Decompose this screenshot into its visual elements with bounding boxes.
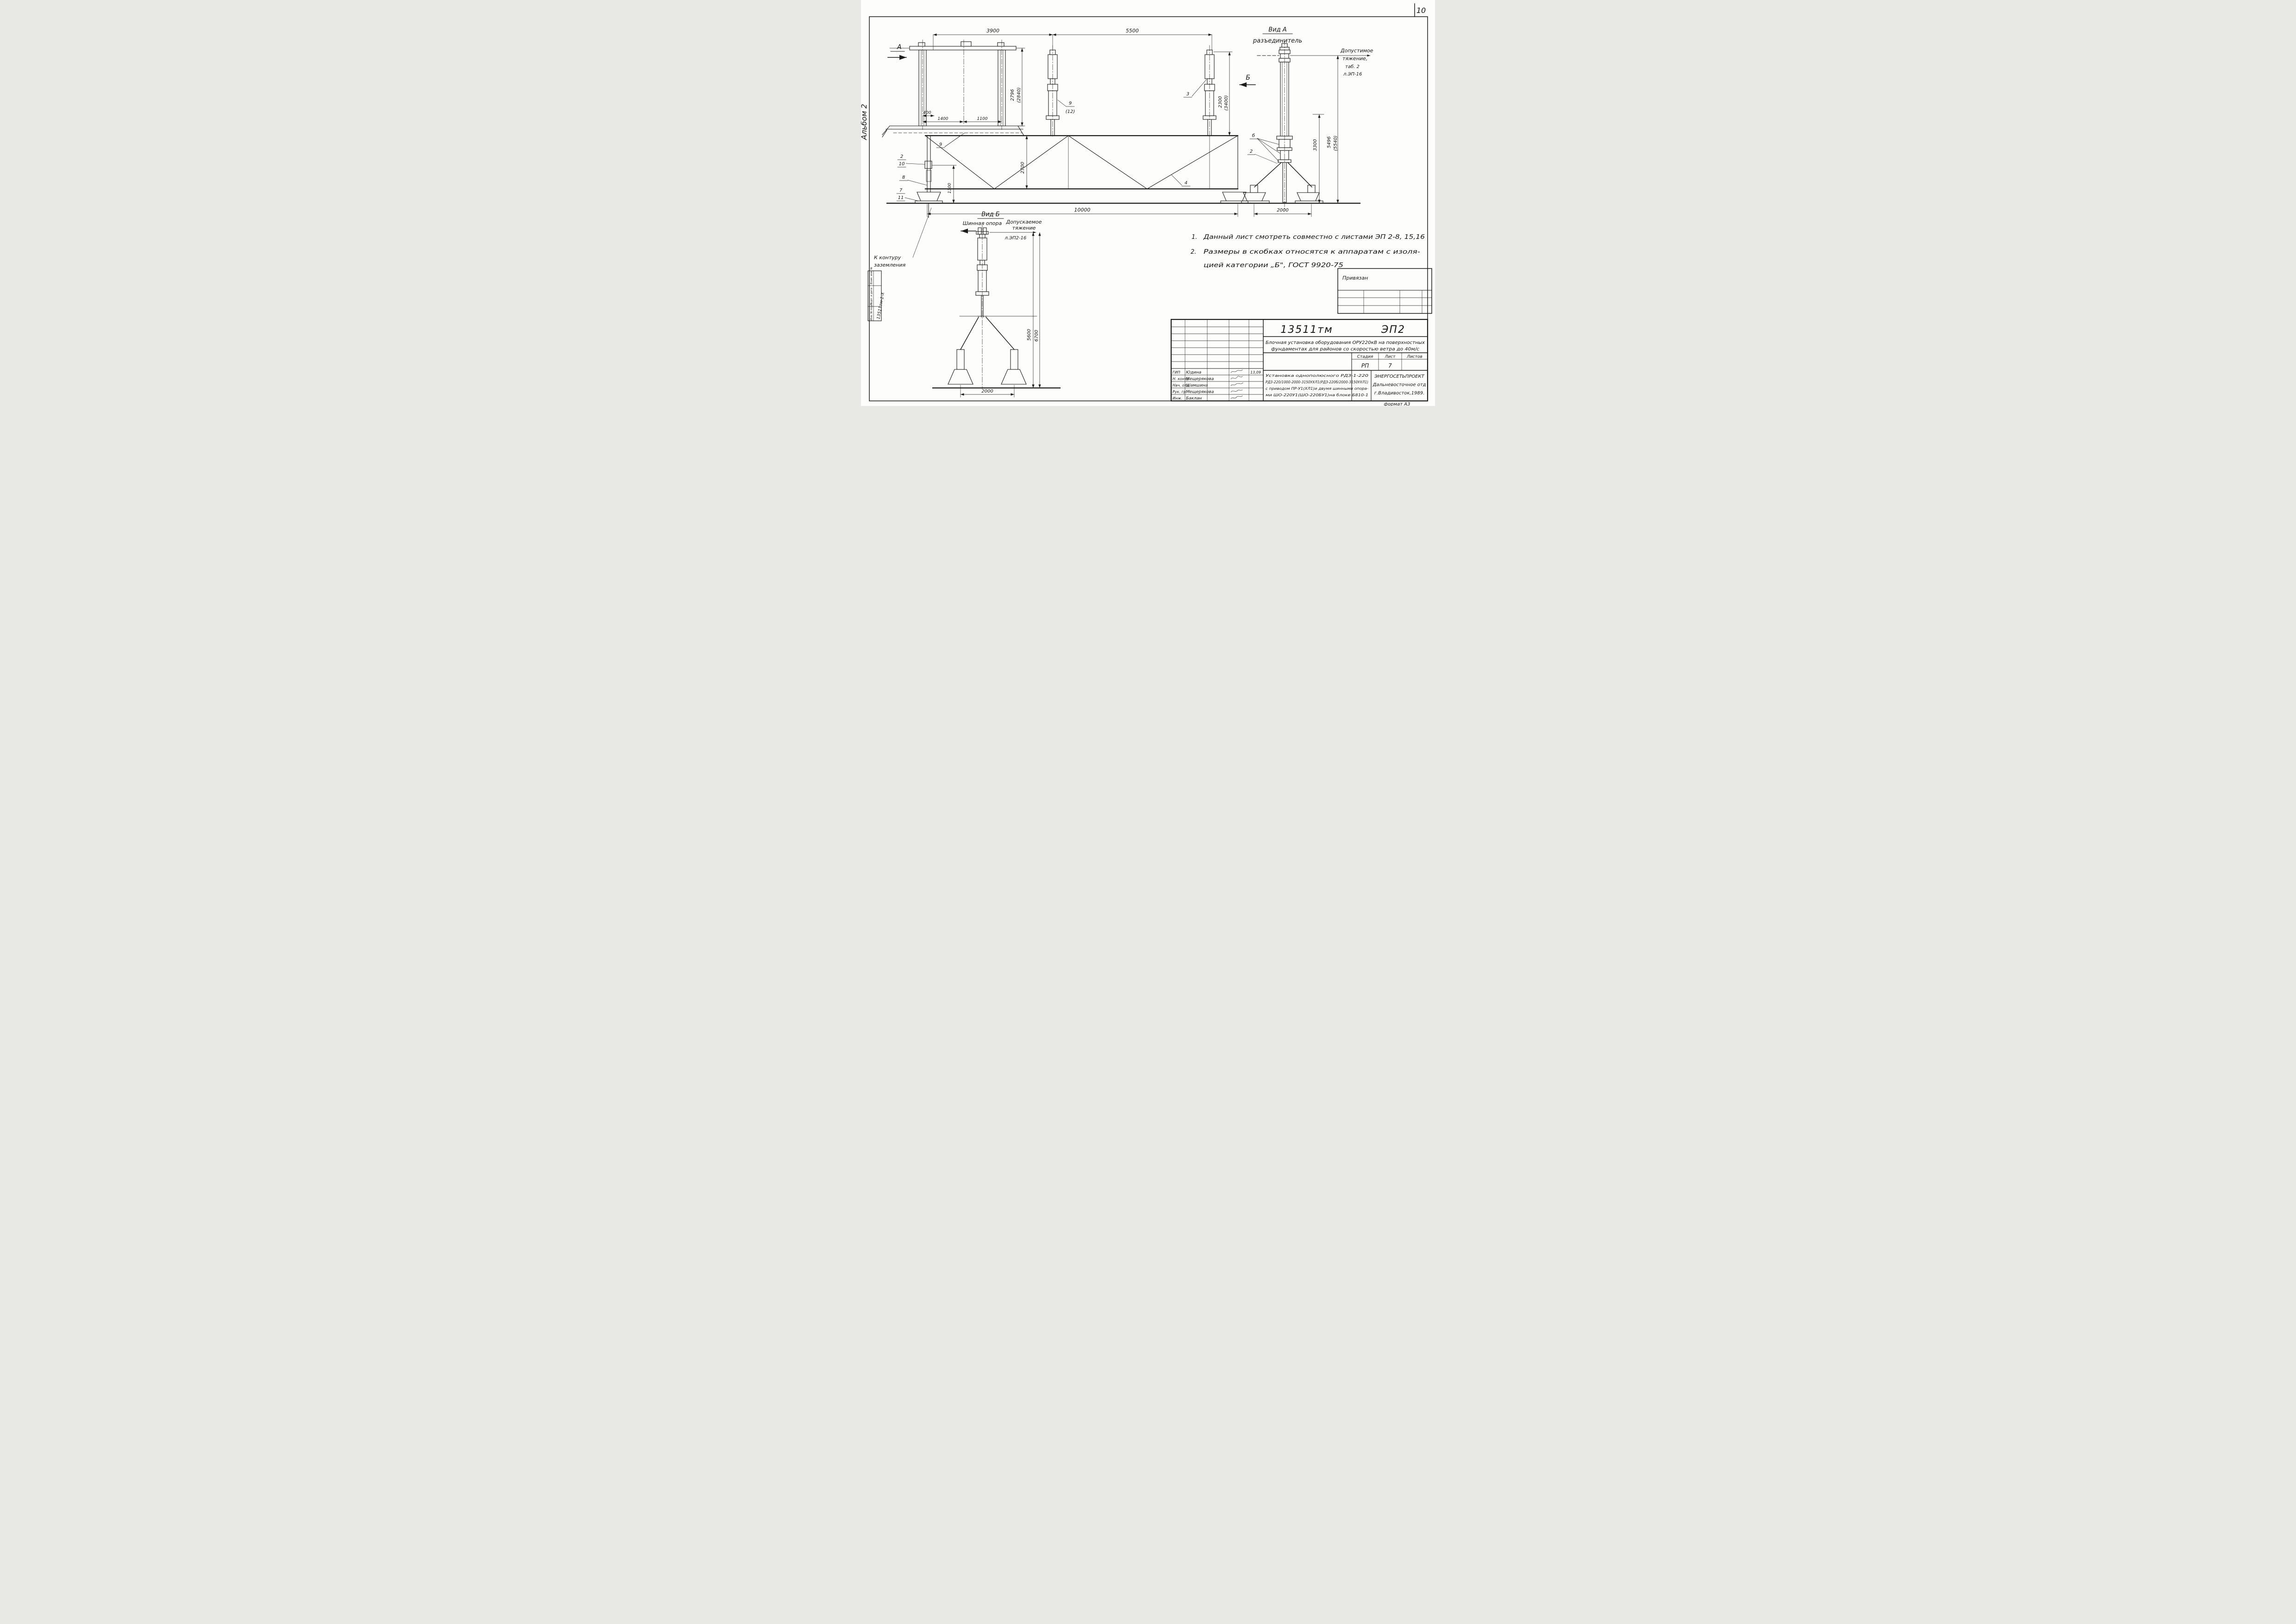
equipment-desc-line4: ми ШО-220У1(ШО-220БУ1)на блоке Б810-1 [1266,393,1368,397]
view-a: Вид А разъединитель Допустимое тяжение, … [1242,26,1373,217]
signature-row: Н. контр Мещерякова [1173,376,1242,381]
dim-1400: 1400 [938,117,948,121]
sig-date: 13,09 [1250,370,1261,375]
dim-10000: 10000 [927,204,1238,217]
support-truss [925,136,1238,189]
signature-scribble [1231,383,1243,386]
format-label: формат А3 [1384,402,1410,406]
title-block: 13511тм ЭП2 Блочная установка оборудован… [1171,319,1428,401]
note2-num: 2. [1191,249,1196,256]
view-b-tension1: Допускаемое [1005,219,1042,225]
dim-5540-label: (5540) [1333,136,1338,151]
note2-text-cont: цией категории „Б", ГОСТ 9920-75 [1204,262,1343,269]
org-name: ЭНЕРГОСЕТЬПРОЕКТ [1374,374,1424,379]
sig-name: Баклан [1186,396,1202,401]
drawing-canvas: 10 Альбом 2 формат А3 Взам. инв. № Подп.… [861,0,1435,406]
callout-10-label: 10 [899,162,905,167]
dim-2700-label: 2700 [1020,162,1025,174]
note1-num: 1. [1192,234,1197,241]
dim-2796-label: 2796 [1010,89,1015,101]
signature-scribble [1231,396,1242,399]
dim-1100: 1100 [977,117,988,121]
callout-3-label: 3 [1186,92,1189,97]
dim-1300: 1300 [932,165,956,203]
dim-2300-label: 2300 [1218,96,1223,108]
sig-role: Рук. гр. [1173,390,1187,394]
signature-grid: ГИП Юдина 13,09 Н. контр Мещерякова Нач.… [1171,319,1263,401]
dim-3300-label: 3300 [1313,139,1318,151]
stamp-podpis-label: Подп. и дата [870,287,873,305]
dim-2000: 2000 [1254,204,1311,217]
callout-8-label: 8 [902,175,905,180]
dim-3900-5500: 3900 5500 [933,28,1212,50]
view-a-title: Вид А [1268,26,1286,33]
tension-line2: тяжение, [1342,56,1367,62]
dim-1300-label: 1300 [948,183,952,194]
dim-portal: 400 1400 1100 [923,111,1002,122]
sig-name: Юдина [1186,370,1201,375]
dim-10000-label: 10000 [1074,207,1091,213]
dim-2700: 2700 [1020,136,1027,189]
callout-2-label: 2 [900,154,903,159]
drawing-title-line1: Блочная установка оборудования ОРУ220кВ … [1266,340,1425,345]
callout-4-label: 4 [1185,181,1187,186]
callout-8: 8 [899,175,927,185]
signature-row: Нач. отд Шамшина [1173,383,1243,388]
callout-9b: 9 [1069,101,1072,106]
page-number: 10 [1416,6,1426,15]
callout-11-label: 11 [898,195,904,200]
privyazan-title: Привязан [1342,275,1368,281]
inventory-code: 13511тм-1-Х [876,292,886,320]
sig-name: Шамшина [1186,383,1208,388]
grounding-note: К контуру заземления [874,203,931,268]
dim-2796: 2796 (2840) [1006,48,1025,126]
signature-scribble [1231,376,1242,379]
view-b: Вид Б Шинная опора Допускаемое тяжение л… [933,211,1060,397]
insulator-column-3 [1203,45,1216,137]
dim-5600-6700: 5600 6700 [1027,232,1040,388]
callout-9: 9 [936,133,965,148]
insulator-column-9 [1046,45,1059,137]
dim-2840-label: (2840) [1017,87,1022,103]
dim-6700-label: 6700 [1034,330,1039,342]
dim-3900: 3900 [986,28,999,34]
signature-row: ГИП Юдина 13,09 [1173,370,1261,375]
signature-row: Рук. гр. Мещерякова [1173,390,1242,394]
signature-row: Инж. Баклан [1173,396,1242,401]
view-b-ref: л.ЭП2-16 [1004,236,1027,241]
view-b-title: Вид Б [981,211,999,218]
callout-b-label: б [1252,133,1255,138]
stamp-inv-label: Инв. № подл. [870,303,873,320]
grounding-line2: заземления [874,262,906,268]
dim-2000b-label: 2000 [981,389,993,394]
callout-12: (12) [1066,109,1075,114]
stage-header: Стадия [1357,355,1373,359]
sig-role: ГИП [1173,370,1180,375]
notes-block: 1. Данный лист смотреть совместно с лист… [1191,234,1425,269]
equipment-desc-line2: РДЗ-220/1000-2000-3150УХЛ1(РДЗ-220б/2000… [1266,380,1368,384]
tension-line1: Допустимое [1340,48,1373,54]
grounding-line1: К контуру [874,255,901,261]
org-city-year: г.Владивосток,1989. [1374,391,1425,396]
dim-5600-label: 5600 [1027,329,1032,341]
section-b-arrow: Б [1240,74,1255,85]
stamp-vzam-label: Взам. инв. № [870,267,873,284]
sig-name: Мещерякова [1186,390,1214,394]
sheets-header: Листов [1406,355,1423,359]
callout-7-label: 7 [899,188,903,193]
dim-5500: 5500 [1126,28,1139,34]
callout-9-12: 9 (12) [1058,100,1075,114]
sig-role: Инж. [1173,396,1182,400]
callout-2b-label: 2 [1250,149,1253,154]
note1-text: Данный лист смотреть совместно с листами… [1203,234,1425,241]
dim-3400-label: (3400) [1224,95,1229,111]
stage-value: РП [1361,362,1369,369]
dim-400: 400 [923,111,931,115]
inventory-stamp-strip: Взам. инв. № Подп. и дата Инв. № подл. 1… [868,267,886,321]
drawing-title-line2: фундаментах для районов со скоростью вет… [1271,347,1420,352]
equipment-desc-line1: Установка однополюсного РДЗ-1-220 [1266,374,1368,378]
signature-scribble [1231,390,1242,392]
callout-4: 4 [1172,175,1190,186]
dim-5496: 5496 (5540) [1327,56,1338,203]
dim-2000-b: 2000 [961,385,1014,397]
sheet-frame: 10 Альбом 2 формат А3 [861,4,1428,406]
privyazan-table: Привязан [1338,269,1432,313]
dim-3300: 3300 [1313,114,1324,203]
dim-5496-label: 5496 [1327,137,1332,148]
callout-9-label: 9 [939,142,942,147]
callout-7-11: 7 11 [897,188,918,201]
portal-frame [890,40,1016,130]
dim-2000-label: 2000 [1277,208,1288,213]
view-b-tension2: тяжение [1012,225,1036,231]
section-b-label: Б [1246,74,1250,81]
sheet-number: 7 [1388,362,1392,369]
sheet-code: ЭП2 [1381,324,1405,336]
album-label: Альбом 2 [861,104,868,140]
signature-scribble [1231,370,1242,373]
doc-code: 13511тм [1280,324,1333,336]
callout-2b: 2 [1248,149,1277,163]
view-a-subtitle: разъединитель [1253,37,1302,44]
tension-line3: таб. 2 [1345,64,1360,69]
dim-2300: 2300 (3400) [1214,52,1232,136]
callout-2-10: 2 10 [898,154,925,167]
tension-note: Допустимое тяжение, таб. 2 л.ЭП-16 [1340,48,1373,77]
equipment-desc-line3: с приводом ПР-У1(ХЛ1)и двумя шинными опо… [1266,387,1368,391]
blueprint-sheet: 10 Альбом 2 формат А3 Взам. инв. № Подп.… [861,0,1435,406]
note2-text: Размеры в скобках относятся к аппаратам … [1204,249,1420,256]
section-a-label: А [897,44,902,51]
sheet-header: Лист [1385,355,1396,359]
callout-b: б [1250,133,1280,162]
sig-name: Мещерякова [1186,377,1214,381]
org-branch: Дальневосточное отд [1372,382,1426,387]
callout-3: 3 [1184,80,1206,97]
tension-line4: л.ЭП-16 [1343,72,1362,77]
